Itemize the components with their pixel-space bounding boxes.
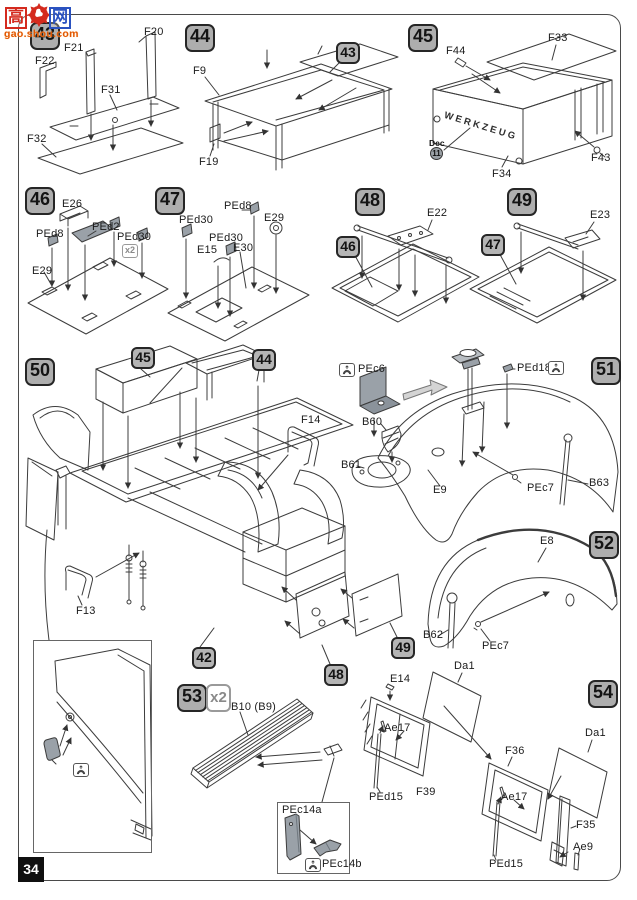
ref-badge-45: 45 [131,347,155,369]
part-label: E9 [433,484,447,496]
step-badge-50: 50 [25,358,55,386]
part-label: F43 [591,152,611,164]
bend-icon-glyph [307,860,319,870]
bend-icon [305,858,321,872]
door-detail-inset-box [33,640,152,853]
part-label: F36 [505,745,525,757]
part-label: PEc7 [527,482,554,494]
part-label: E26 [62,198,82,210]
step-badge-49: 49 [507,188,537,216]
part-label: Ae17 [384,722,411,734]
part-label: B60 [362,416,382,428]
part-label: PEc14a [282,804,322,816]
ped30-multiplier: x2 [122,244,138,258]
part-label: F13 [76,605,96,617]
step-badge-47: 47 [155,187,185,215]
step-badge-46: 46 [25,187,55,215]
ref-badge-46: 46 [336,236,360,258]
bend-icon [73,763,89,777]
bend-icon-glyph [75,765,87,775]
step-badge-54: 54 [588,680,618,708]
ref-badge-49: 49 [391,637,415,659]
step-badge-44: 44 [185,24,215,52]
part-label: PEc7 [482,640,509,652]
part-label: F33 [548,32,568,44]
bend-icon-glyph [341,365,353,375]
ref-badge-42: 42 [192,647,216,669]
step-badge-45: 45 [408,24,438,52]
part-label: B61 [341,459,361,471]
decal-number-badge: 11 [430,147,443,160]
step-badge-48: 48 [355,188,385,216]
part-label: E29 [264,212,284,224]
part-label: F44 [446,45,466,57]
part-label: F14 [301,414,321,426]
bend-icon-glyph [550,363,562,373]
ref-badge-44: 44 [252,349,276,371]
part-label: F19 [199,156,219,168]
ref-badge-48: 48 [324,664,348,686]
watermark-site-text: gao.shou.com [4,28,79,40]
part-label: E23 [590,209,610,221]
step-53-multiplier: x2 [206,684,231,712]
part-label: E14 [390,673,410,685]
step-badge-53: 53 [177,684,207,712]
ref-badge-43: 43 [336,42,360,64]
part-label: E15 [197,244,217,256]
part-label: F22 [35,55,55,67]
part-label: E8 [540,535,554,547]
part-label: E29 [32,265,52,277]
part-label: PEd15 [489,858,523,870]
part-label: F21 [64,42,84,54]
part-label: F20 [144,26,164,38]
part-label: E22 [427,207,447,219]
part-label: Ae17 [501,791,528,803]
part-label: B62 [423,629,443,641]
part-label: F35 [576,819,596,831]
watermark-char-left: 高 [5,7,27,29]
part-label: PEc14b [322,858,362,870]
step-badge-51: 51 [591,357,621,385]
page-number: 34 [18,857,44,882]
part-label: E30 [233,242,253,254]
bend-icon [339,363,355,377]
part-label: Da1 [585,727,606,739]
part-label: F31 [101,84,121,96]
part-label: F34 [492,168,512,180]
instruction-page: 43 44 45 46 47 48 49 50 51 52 53 x2 54 4… [0,0,637,900]
part-label: PEd30 [117,231,151,243]
part-label: PEd8 [224,200,252,212]
part-label: B10 (B9) [231,701,276,713]
part-label: PEc6 [358,363,385,375]
part-label: F39 [416,786,436,798]
part-label: PEd8 [36,228,64,240]
watermark-char-right: 网 [49,7,71,29]
part-label: PEd18 [517,362,551,374]
part-label: F9 [193,65,206,77]
part-label: PEd2 [92,221,120,233]
part-label: F32 [27,133,47,145]
part-label: PEd30 [179,214,213,226]
part-label: Ae9 [573,841,593,853]
step-badge-52: 52 [589,531,619,559]
part-label: Da1 [454,660,475,672]
bend-icon [548,361,564,375]
part-label: B63 [589,477,609,489]
part-label: PEd15 [369,791,403,803]
ref-badge-47: 47 [481,234,505,256]
